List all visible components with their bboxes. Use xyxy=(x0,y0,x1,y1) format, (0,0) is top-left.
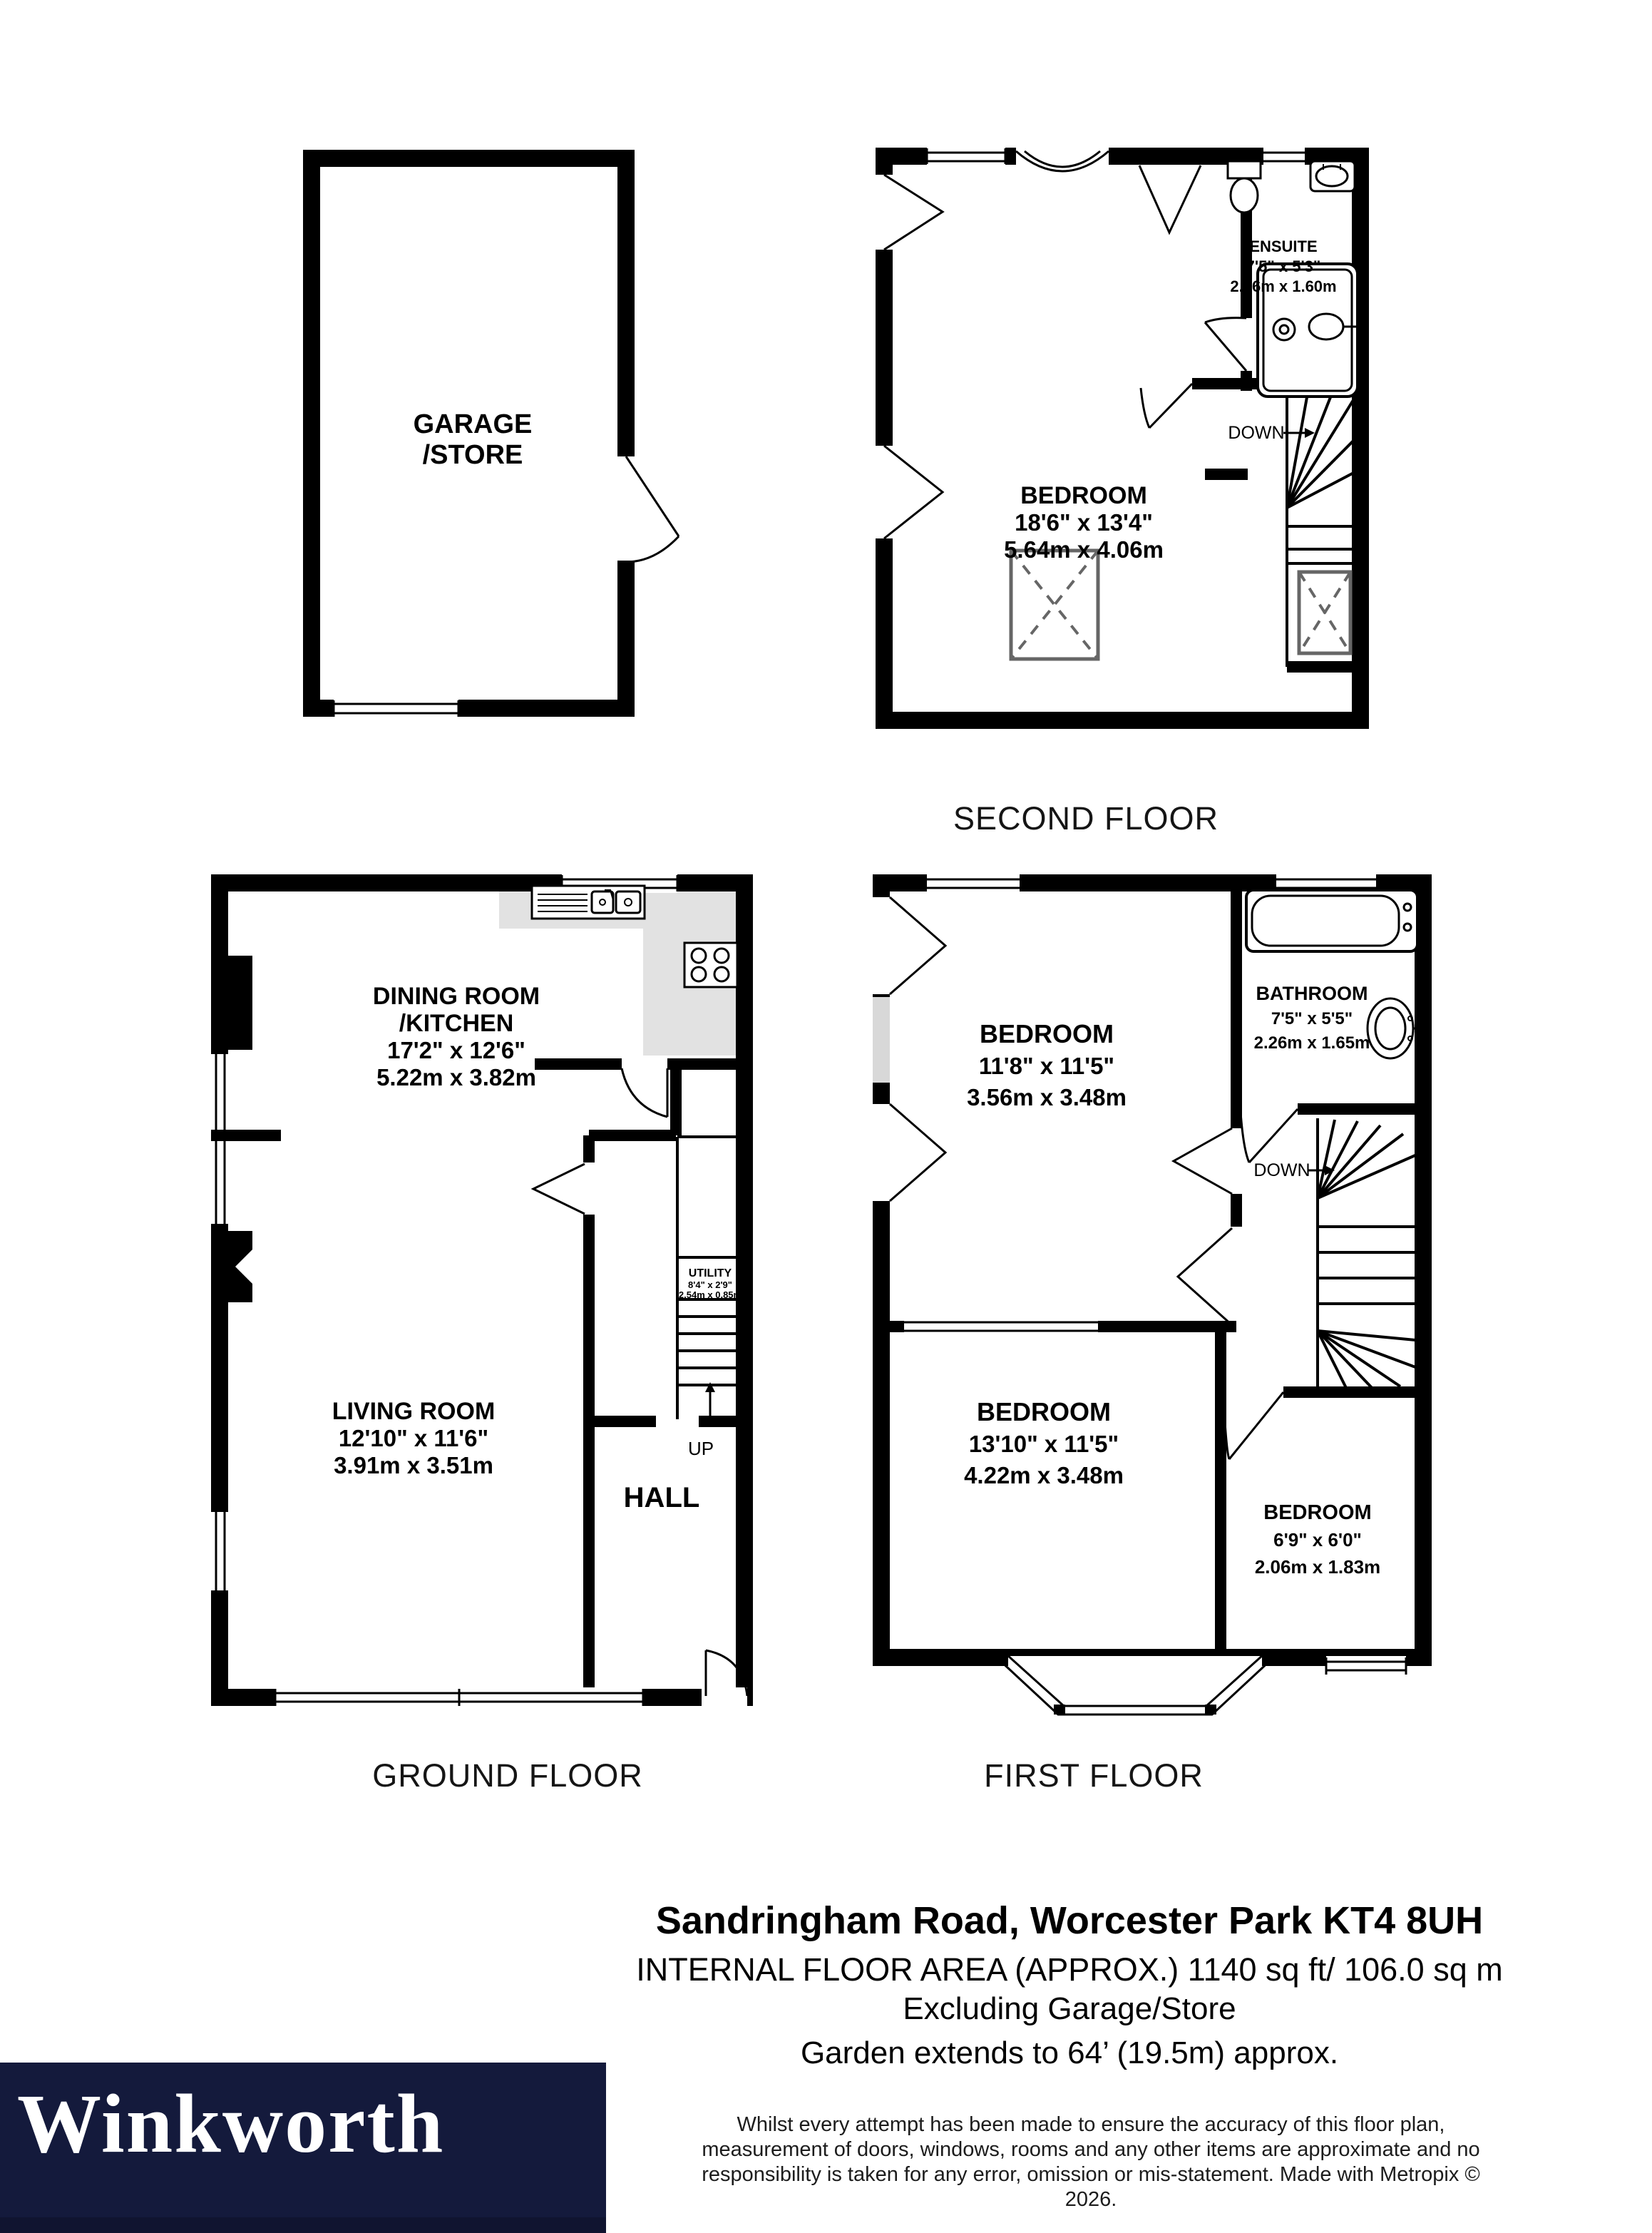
bathroom-metric: 2.26m x 1.65m xyxy=(1254,1033,1370,1053)
bedroom-front-imperial: 13'10" x 11'5" xyxy=(969,1431,1119,1457)
ensuite-metric: 2.26m x 1.60m xyxy=(1230,277,1336,295)
down-label: DOWN xyxy=(1253,1160,1310,1180)
garage-room-label: GARAGE /STORE xyxy=(414,409,533,470)
utility-metric: 2.54m x 0.85m xyxy=(679,1289,742,1300)
dining-metric: 5.22m x 3.82m xyxy=(376,1064,536,1090)
ground-floor-plan: DINING ROOM /KITCHEN 17'2" x 12'6" 5.22m… xyxy=(203,867,763,1715)
disclaimer-line: measurement of doors, windows, rooms and… xyxy=(677,2137,1504,2162)
floorplan-page: GARAGE /STORE xyxy=(0,0,1652,2233)
first-floor-caption: FIRST FLOOR xyxy=(984,1757,1204,1794)
bedroom-name: BEDROOM xyxy=(1020,482,1147,509)
sink-icon xyxy=(532,886,645,919)
garage-floor-plan: GARAGE /STORE xyxy=(299,143,642,724)
bath-icon xyxy=(1246,890,1417,951)
bedroom-front-name: BEDROOM xyxy=(977,1397,1111,1426)
bedroom-small-metric: 2.06m x 1.83m xyxy=(1255,1556,1380,1578)
ensuite-imperial: 7'5" x 5'3" xyxy=(1246,257,1321,275)
second-floor-plan: BEDROOM 18'6" x 13'4" 5.64m x 4.06m ENSU… xyxy=(863,139,1383,749)
hall-name: HALL xyxy=(624,1482,700,1513)
first-floor-plan: BEDROOM 11'8" x 11'5" 3.56m x 3.48m BATH… xyxy=(866,867,1440,1719)
ensuite-name: ENSUITE xyxy=(1249,237,1317,255)
basin-icon xyxy=(1310,161,1355,191)
excluding-note: Excluding Garage/Store xyxy=(627,1991,1512,2027)
garden-note: Garden extends to 64’ (19.5m) approx. xyxy=(627,2035,1512,2071)
garage-name: GARAGE xyxy=(414,409,533,439)
living-name: LIVING ROOM xyxy=(332,1398,496,1425)
dining-name2: /KITCHEN xyxy=(399,1010,514,1037)
living-imperial: 12'10" x 11'6" xyxy=(339,1425,488,1451)
internal-floor-area: INTERNAL FLOOR AREA (APPROX.) 1140 sq ft… xyxy=(627,1951,1512,1988)
living-metric: 3.91m x 3.51m xyxy=(334,1452,493,1478)
bedroom-imperial: 18'6" x 13'4" xyxy=(1015,509,1153,536)
disclaimer-line: responsibility is taken for any error, o… xyxy=(677,2162,1504,2212)
up-arrow-icon xyxy=(705,1382,715,1421)
dining-imperial: 17'2" x 12'6" xyxy=(387,1037,525,1063)
property-address: Sandringham Road, Worcester Park KT4 8UH xyxy=(627,1899,1512,1943)
bedroom-front-metric: 4.22m x 3.48m xyxy=(964,1462,1124,1488)
disclaimer-line: Whilst every attempt has been made to en… xyxy=(677,2112,1504,2137)
bathroom-name: BATHROOM xyxy=(1256,983,1368,1004)
bathroom-imperial: 7'5" x 5'5" xyxy=(1271,1009,1353,1028)
bedroom-back-imperial: 11'8" x 11'5" xyxy=(979,1053,1114,1079)
utility-name: UTILITY xyxy=(689,1267,732,1279)
logo-bottom-strip xyxy=(0,2217,606,2233)
skylight-icon xyxy=(1011,551,1350,659)
bedroom-metric: 5.64m x 4.06m xyxy=(1004,536,1164,563)
b edroom-back-metric: 3.56m x 3.48m xyxy=(967,1084,1127,1110)
winkworth-logo: Winkworth xyxy=(0,2063,606,2233)
bedroom-back-name: BEDROOM xyxy=(980,1019,1114,1048)
ground-floor-caption: GROUND FLOOR xyxy=(372,1757,643,1794)
winkworth-logo-text: Winkworth xyxy=(17,2075,444,2172)
second-floor-caption: SECOND FLOOR xyxy=(953,800,1219,837)
bedroom-small-name: BEDROOM xyxy=(1263,1501,1371,1524)
toilet-icon xyxy=(1228,161,1261,213)
down-label: DOWN xyxy=(1228,423,1284,443)
disclaimer: Whilst every attempt has been made to en… xyxy=(677,2112,1504,2212)
bedroom-small-imperial: 6'9" x 6'0" xyxy=(1273,1529,1362,1550)
stairs-first-floor xyxy=(1318,1118,1423,1391)
dining-name: DINING ROOM xyxy=(373,983,540,1010)
hob-icon xyxy=(684,943,737,987)
garage-name2: /STORE xyxy=(423,440,523,470)
up-label: UP xyxy=(688,1438,714,1459)
utility-imperial: 8'4" x 2'9" xyxy=(688,1279,732,1290)
